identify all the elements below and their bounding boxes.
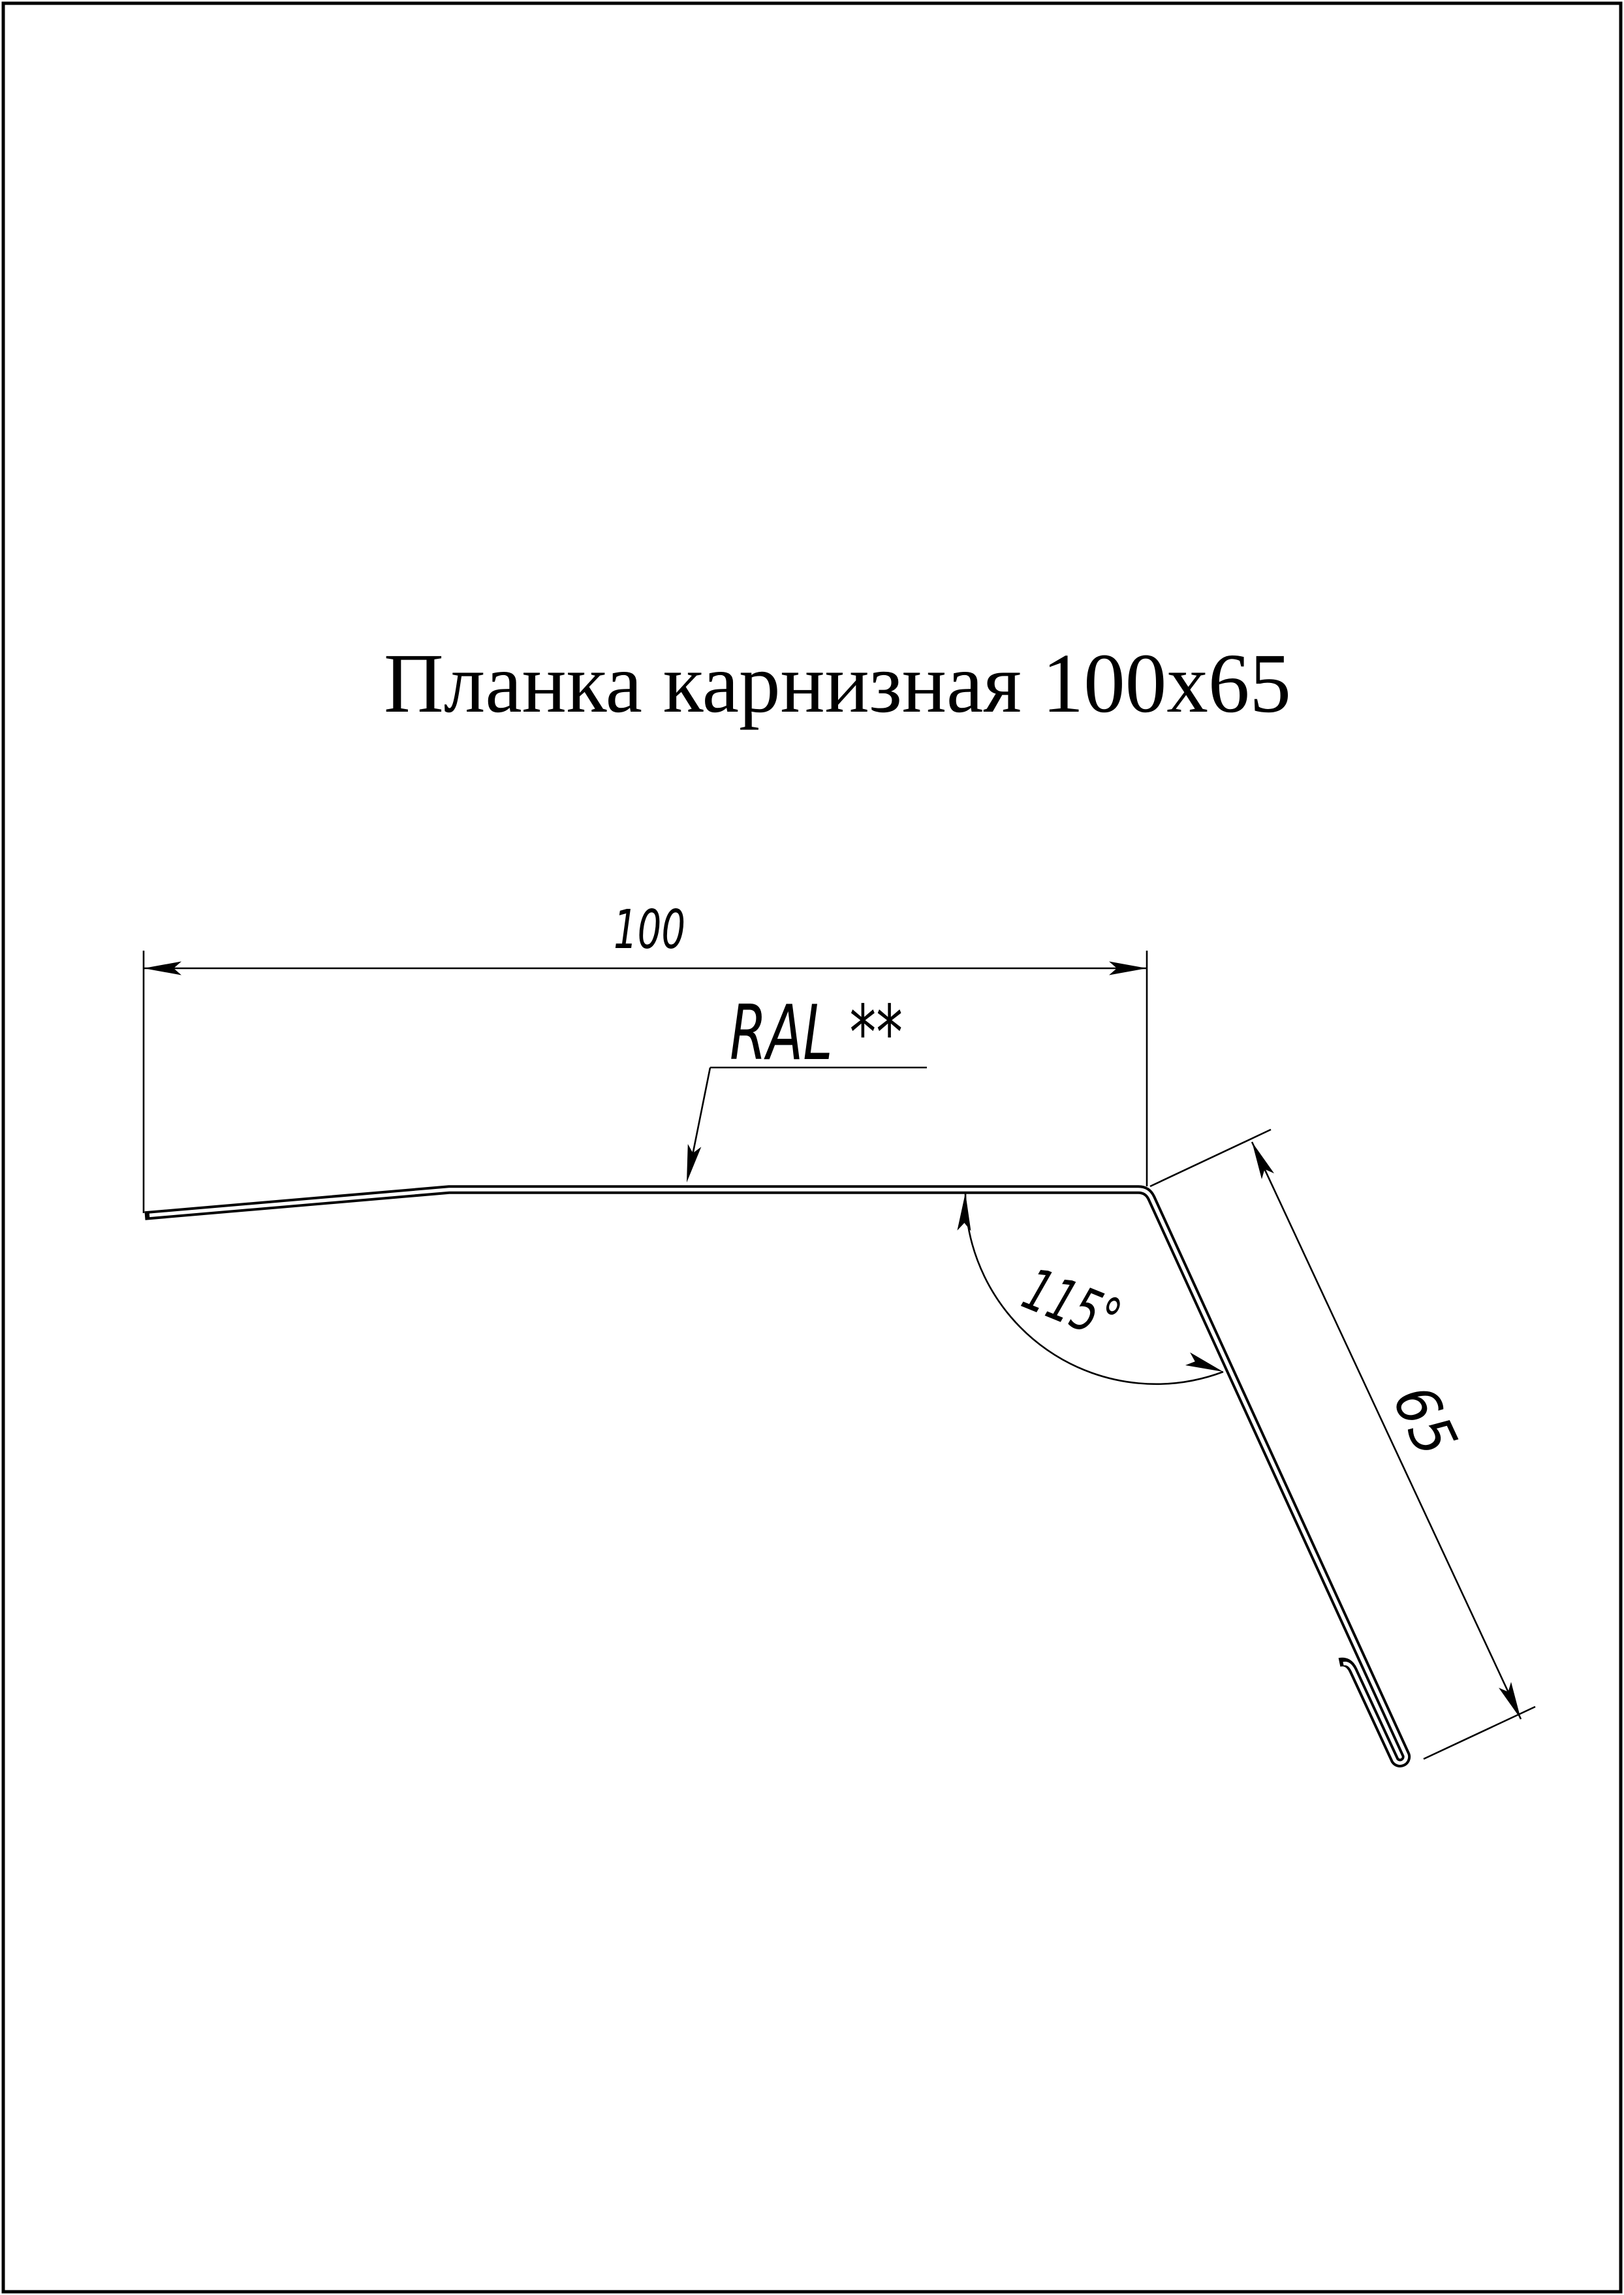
dimension-angle-label: 115° bbox=[1014, 1255, 1130, 1355]
ral-leader-note: RAL ** bbox=[680, 989, 927, 1184]
technical-drawing-canvas: Планка карнизная 100x65 100 RAL ** bbox=[0, 0, 1624, 2295]
sheet-metal-outline bbox=[145, 1190, 1406, 1763]
dimension-line-height bbox=[1252, 1142, 1521, 1719]
leader-line bbox=[691, 1068, 710, 1165]
dimension-angle: 115° bbox=[957, 1193, 1225, 1384]
page-title: Планка карнизная 100x65 bbox=[384, 637, 1291, 731]
extension-line-top bbox=[1150, 1130, 1271, 1186]
drawing-page: Планка карнизная 100x65 100 RAL ** bbox=[0, 0, 1624, 2295]
dimension-height-label: 65 bbox=[1379, 1375, 1471, 1466]
dimension-width-label: 100 bbox=[614, 899, 685, 961]
arrowhead-angle-start bbox=[957, 1193, 972, 1231]
arrowhead-height-top bbox=[1245, 1139, 1274, 1179]
profile-cross-section bbox=[145, 1190, 1406, 1763]
sheet-metal-core bbox=[149, 1190, 1406, 1763]
ral-label: RAL ** bbox=[730, 989, 903, 1077]
dimension-width: 100 bbox=[144, 899, 1147, 1213]
arrowhead-leader bbox=[680, 1144, 702, 1184]
page-border bbox=[3, 3, 1621, 2292]
arrowhead-height-bottom bbox=[1499, 1682, 1527, 1722]
